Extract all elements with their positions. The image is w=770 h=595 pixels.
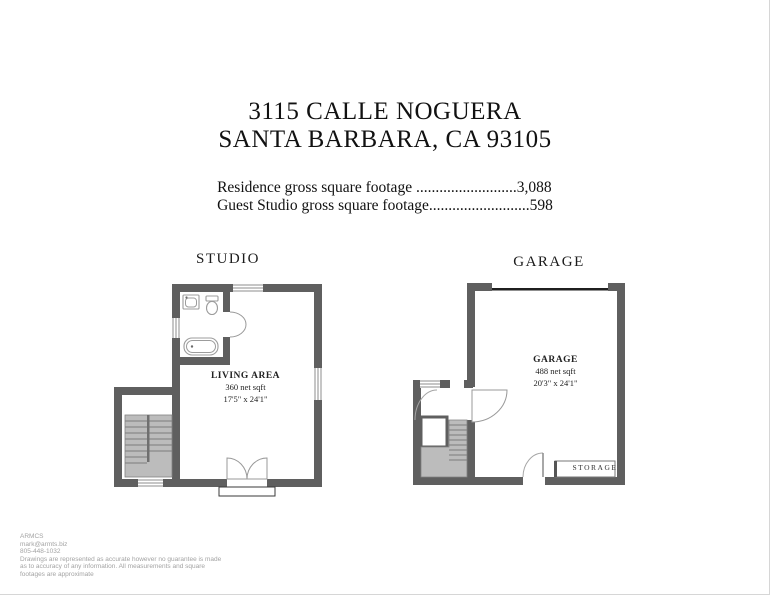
page-title: 3115 CALLE NOGUERA SANTA BARBARA, CA 931…: [0, 98, 770, 154]
footer-disclaimer-line-1: Drawings are represented as accurate how…: [20, 556, 320, 564]
door-threshold: [219, 487, 275, 496]
living-area-dims: 17'5" x 24'1": [178, 394, 313, 406]
garage-room-dims: 20'3" x 24'1": [488, 378, 623, 390]
footer-fine-print: ARMCS mark@armts.biz 805-448-1032 Drawin…: [20, 533, 320, 579]
address-line-1: 3115 CALLE NOGUERA: [0, 98, 770, 126]
footer-phone: 805-448-1032: [20, 548, 320, 556]
garage-room-name: GARAGE: [488, 354, 623, 366]
residence-footage-line: Residence gross square footage .........…: [217, 179, 553, 197]
footer-email: mark@armts.biz: [20, 541, 320, 549]
toilet: [206, 296, 218, 315]
sink: [183, 295, 199, 309]
bathtub: [184, 338, 218, 355]
living-area-label: LIVING AREA 360 net sqft 17'5" x 24'1": [178, 370, 313, 405]
address-line-2: SANTA BARBARA, CA 93105: [0, 126, 770, 154]
french-door: [219, 458, 275, 496]
garage-room-sqft: 488 net sqft: [488, 366, 623, 378]
living-area-sqft: 360 net sqft: [178, 382, 313, 394]
studio-stairs: [125, 415, 172, 477]
garage-door-line: [492, 288, 608, 291]
footer-company: ARMCS: [20, 533, 320, 541]
living-area-name: LIVING AREA: [178, 370, 313, 382]
entry-closet: [421, 417, 447, 447]
footage-summary: Residence gross square footage .........…: [0, 179, 770, 215]
storage-label: STORAGE: [556, 463, 634, 472]
footer-disclaimer-line-2: as to accuracy of any information. All m…: [20, 563, 320, 571]
floorplan-sheet: 3115 CALLE NOGUERA SANTA BARBARA, CA 931…: [0, 0, 770, 595]
garage-rear-door: [523, 453, 545, 485]
bathroom-door-arc: [230, 312, 246, 337]
garage-room-label: GARAGE 488 net sqft 20'3" x 24'1": [488, 354, 623, 389]
footer-disclaimer-line-3: footages are approximate: [20, 571, 320, 579]
guest-studio-footage-line: Guest Studio gross square footage.......…: [217, 197, 553, 215]
